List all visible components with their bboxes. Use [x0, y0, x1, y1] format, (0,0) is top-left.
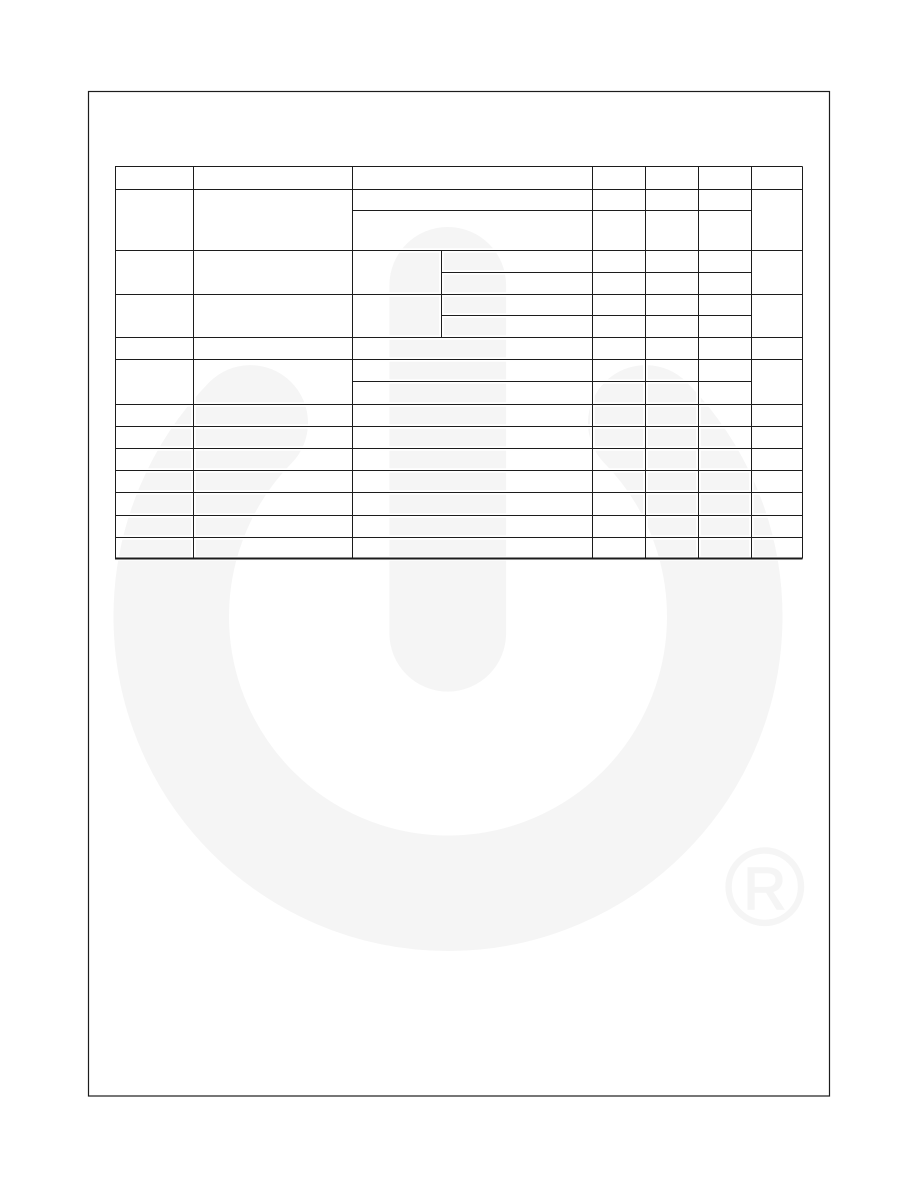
svg-text:R: R	[743, 856, 786, 922]
